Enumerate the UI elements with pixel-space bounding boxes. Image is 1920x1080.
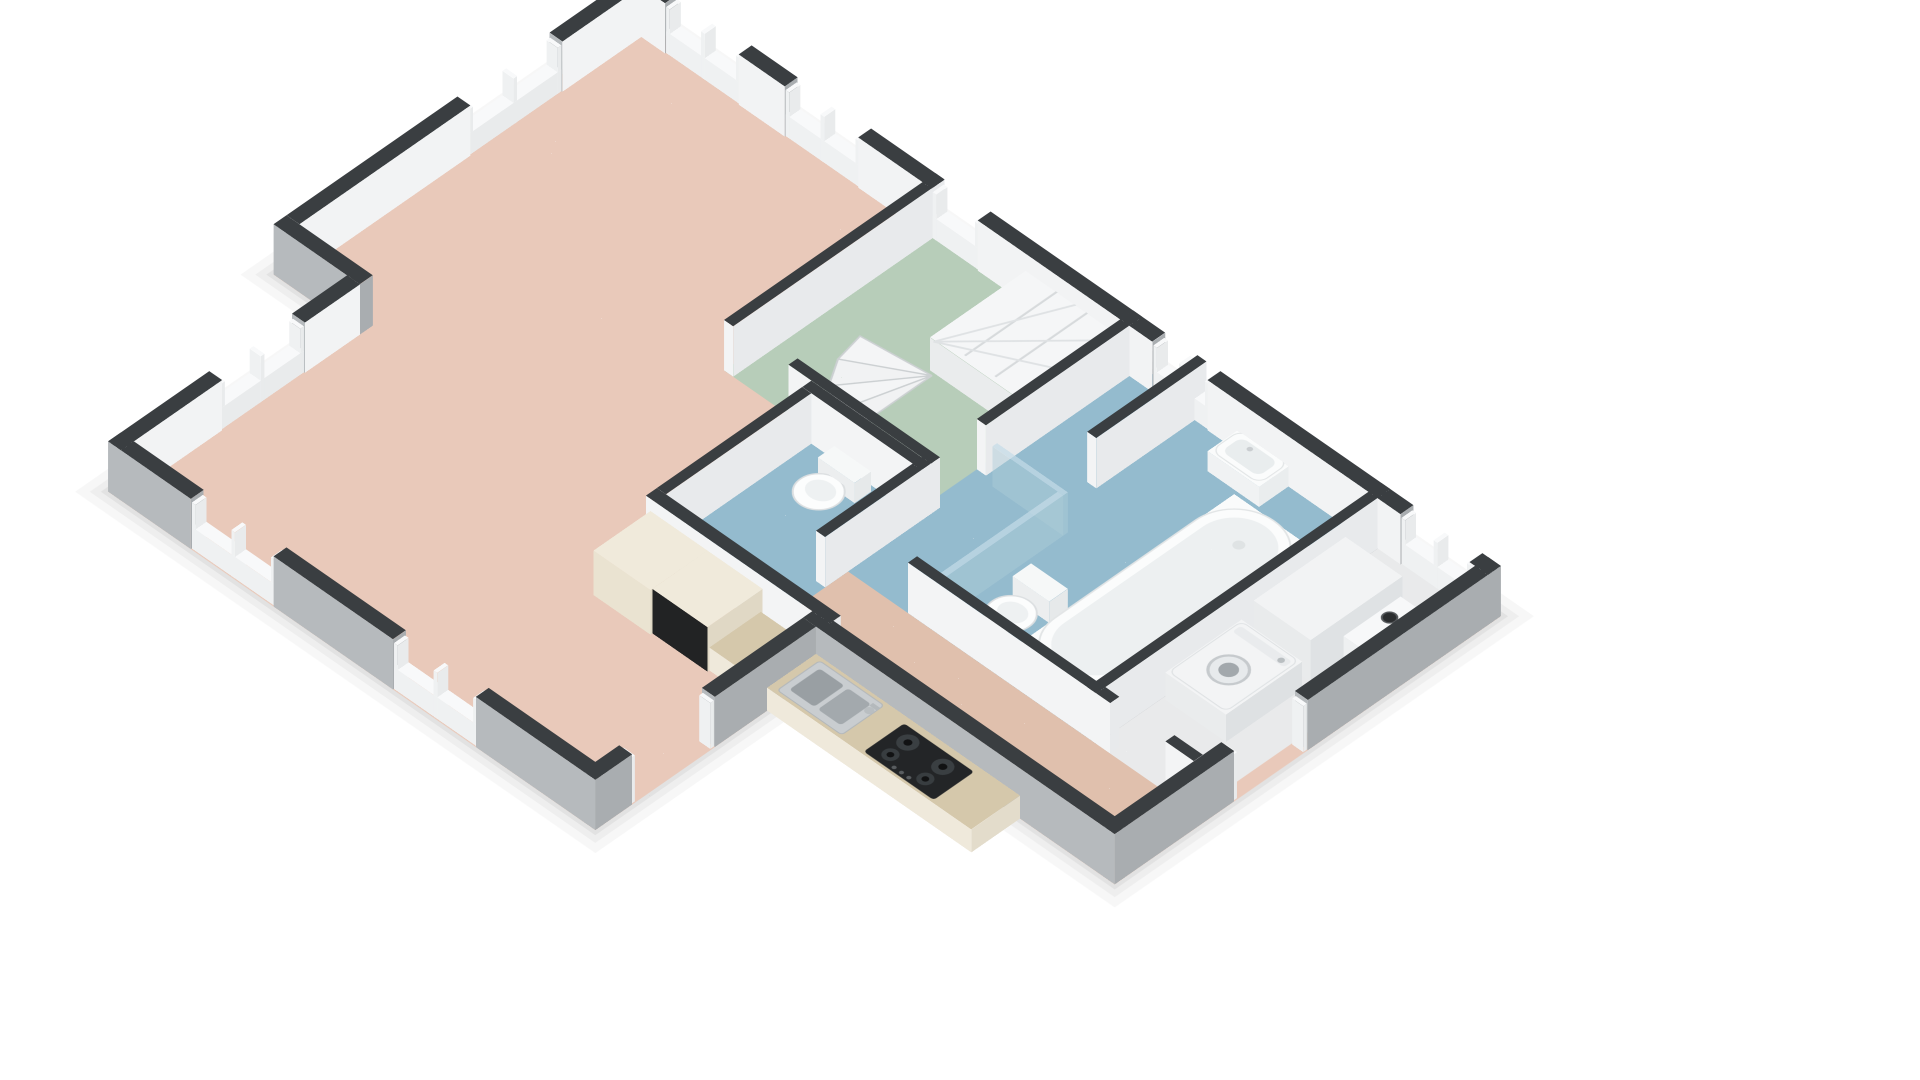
floorplan-canvas — [0, 0, 1920, 1080]
floorplan-3d-view — [0, 0, 1561, 1079]
